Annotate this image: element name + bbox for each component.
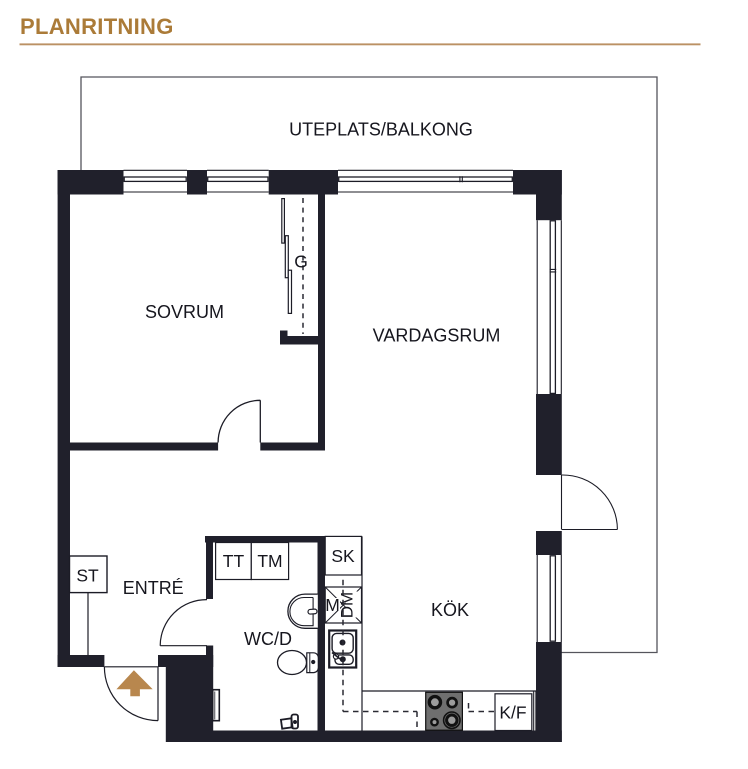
svg-text:SK: SK: [331, 546, 355, 566]
svg-text:SOVRUM: SOVRUM: [145, 302, 224, 322]
svg-text:TT: TT: [223, 551, 245, 571]
svg-text:KÖK: KÖK: [431, 600, 469, 620]
svg-text:DM: DM: [338, 592, 357, 618]
svg-text:K/F: K/F: [499, 703, 526, 723]
svg-text:TM: TM: [257, 551, 282, 571]
svg-text:G: G: [294, 252, 308, 272]
svg-text:VARDAGSRUM: VARDAGSRUM: [373, 325, 501, 345]
svg-text:WC/D: WC/D: [244, 629, 292, 649]
svg-text:ENTRÉ: ENTRÉ: [123, 578, 184, 598]
svg-text:ST: ST: [76, 566, 99, 586]
svg-text:UTEPLATS/BALKONG: UTEPLATS/BALKONG: [289, 120, 473, 140]
svg-text:PLANRITNING: PLANRITNING: [20, 14, 174, 39]
